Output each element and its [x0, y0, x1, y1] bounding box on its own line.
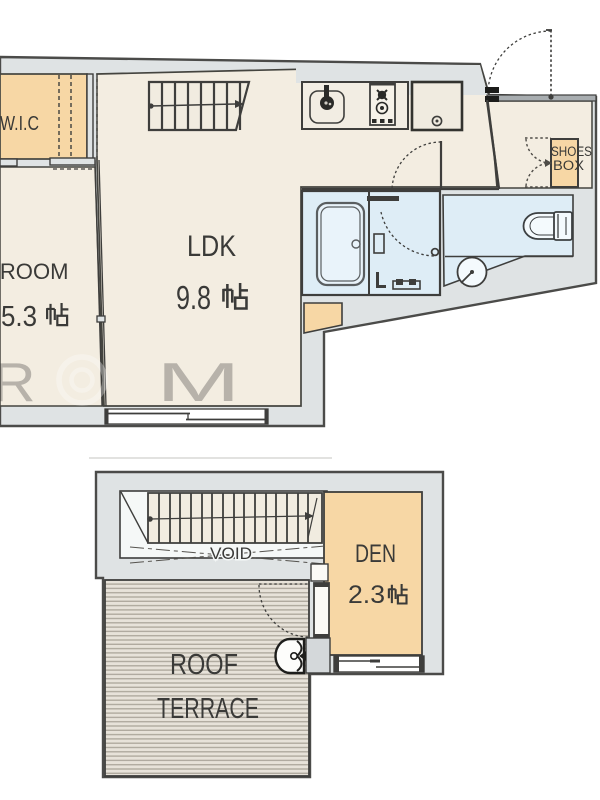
svg-text:W.I.C: W.I.C [0, 113, 39, 135]
svg-text:LDK: LDK [187, 230, 236, 263]
svg-text:DEN: DEN [355, 540, 396, 568]
svg-text:BOX: BOX [553, 158, 584, 173]
svg-text:2.3: 2.3 [348, 581, 385, 609]
svg-text:VOID: VOID [210, 544, 252, 563]
svg-text:9.8: 9.8 [176, 279, 211, 316]
svg-text:R: R [0, 352, 36, 413]
svg-text:BEDROOM: BEDROOM [0, 259, 69, 284]
svg-text:ROOF: ROOF [170, 649, 238, 681]
svg-text:TERRACE: TERRACE [157, 693, 259, 725]
svg-text:M: M [156, 352, 241, 413]
svg-text:SHOES: SHOES [551, 144, 592, 159]
svg-text:5.3: 5.3 [1, 301, 37, 333]
